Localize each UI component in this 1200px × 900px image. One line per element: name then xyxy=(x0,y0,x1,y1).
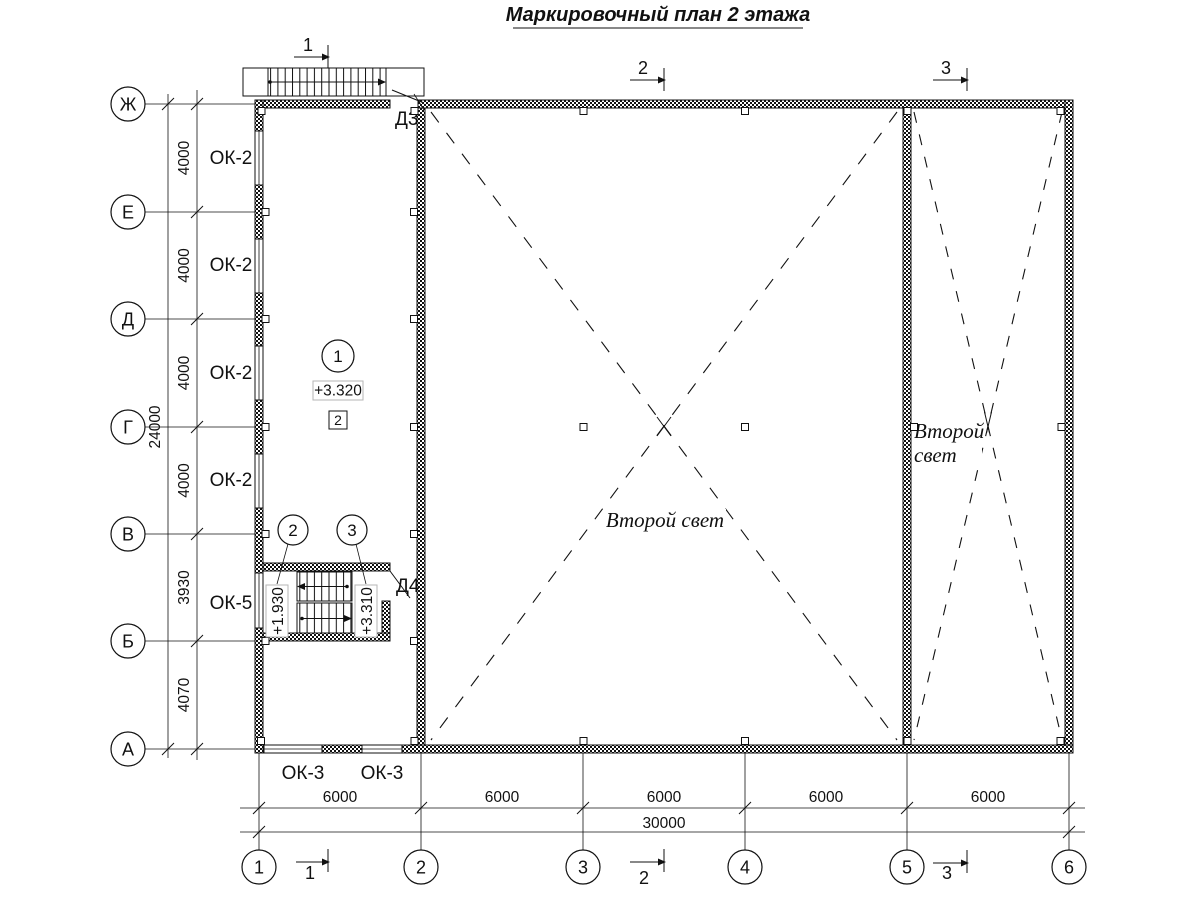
dim-value: 3930 xyxy=(176,570,193,605)
wall-bottom xyxy=(322,745,362,753)
column xyxy=(262,531,269,538)
axis-label: Е xyxy=(122,203,134,223)
section-number: 1 xyxy=(305,863,315,883)
section-number: 2 xyxy=(639,868,649,888)
section-number: 1 xyxy=(303,35,313,55)
dim-total-value: 30000 xyxy=(642,815,685,832)
elevation-value: +1.930 xyxy=(270,587,287,635)
dim-total-value: 24000 xyxy=(147,405,164,448)
column xyxy=(411,638,418,645)
dim-value: 4000 xyxy=(176,140,193,175)
axis-label: Б xyxy=(122,632,134,652)
section-arrow-head xyxy=(961,77,969,84)
column xyxy=(258,108,265,115)
title-text: Маркировочный план 2 этажа xyxy=(506,4,811,26)
axis-label: 2 xyxy=(416,858,426,878)
floor-plan-sheet: Маркировочный план 2 этажа Второй свет В… xyxy=(0,0,1200,900)
axis-label: Ж xyxy=(120,95,137,115)
axis-label: В xyxy=(122,525,134,545)
wall-left-pier xyxy=(255,628,263,753)
axis-label: А xyxy=(122,740,134,760)
dim-value: 4000 xyxy=(176,248,193,283)
opening-tags: ОК-2 ОК-2 ОК-2 ОК-2 ОК-5 ОК-3 ОК-3 xyxy=(210,148,404,784)
section-arrow-head xyxy=(658,859,666,866)
column xyxy=(258,738,265,745)
wall-bottom xyxy=(402,745,1073,753)
column xyxy=(904,108,911,115)
window-tag-ok2: ОК-2 xyxy=(210,148,253,169)
column xyxy=(1057,738,1064,745)
axis-label: 6 xyxy=(1064,858,1074,878)
wall-left-pier xyxy=(255,100,263,131)
wall-axis-5 xyxy=(903,108,911,745)
column xyxy=(411,424,418,431)
axis-label: Д xyxy=(122,310,134,330)
column xyxy=(742,108,749,115)
drawing-title: Маркировочный план 2 этажа xyxy=(506,4,811,28)
window-tag-ok2: ОК-2 xyxy=(210,470,253,491)
window-tag-ok5: ОК-5 xyxy=(210,593,253,614)
elevation-value: +3.310 xyxy=(359,587,376,635)
axis-label: 4 xyxy=(740,858,750,878)
dim-value: 6000 xyxy=(647,789,682,806)
column xyxy=(262,316,269,323)
dim-value: 6000 xyxy=(485,789,520,806)
wall-top-right xyxy=(418,100,1073,108)
window-tag-ok3: ОК-3 xyxy=(361,763,404,784)
axis-label: 1 xyxy=(254,858,264,878)
section-marks: 1 2 3 1 2 3 xyxy=(294,35,969,888)
node-number: 2 xyxy=(288,521,297,540)
column xyxy=(411,209,418,216)
axis-label: 5 xyxy=(902,858,912,878)
stairwell-wall-right xyxy=(382,601,390,633)
dim-value: 4070 xyxy=(176,677,193,712)
section-arrow-head xyxy=(658,77,666,84)
column xyxy=(911,424,918,431)
column xyxy=(262,209,269,216)
section-arrow-head xyxy=(961,860,969,867)
windows xyxy=(255,131,402,753)
column xyxy=(262,424,269,431)
axis-label: Г xyxy=(123,418,133,438)
dim-value: 6000 xyxy=(809,789,844,806)
finish-mark: 2 xyxy=(334,412,342,428)
wall-left-pier xyxy=(255,508,263,573)
wall-top-left xyxy=(255,100,390,108)
column xyxy=(411,531,418,538)
window-tag-ok2: ОК-2 xyxy=(210,255,253,276)
section-number: 3 xyxy=(942,863,952,883)
window-tag-ok2: ОК-2 xyxy=(210,363,253,384)
second-light-label: Второй свет xyxy=(606,508,724,532)
column xyxy=(742,424,749,431)
room-number: 1 xyxy=(333,347,342,366)
dim-value: 6000 xyxy=(323,789,358,806)
elevation-value: +3.320 xyxy=(314,383,362,400)
column xyxy=(1058,424,1065,431)
wall-right xyxy=(1065,100,1073,753)
axis-label: 3 xyxy=(578,858,588,878)
dim-value: 6000 xyxy=(971,789,1006,806)
column xyxy=(411,738,418,745)
dim-value: 4000 xyxy=(176,355,193,390)
column xyxy=(262,638,269,645)
second-light-label-line1: Второй xyxy=(914,419,985,443)
dim-value: 4000 xyxy=(176,463,193,498)
column xyxy=(411,108,418,115)
column xyxy=(580,738,587,745)
section-number: 2 xyxy=(638,58,648,78)
floor-plan-drawing: Маркировочный план 2 этажа Второй свет В… xyxy=(0,0,1200,900)
door-d4-label: Д4 xyxy=(396,576,420,597)
second-light-label-line2: свет xyxy=(914,443,957,467)
section-number: 3 xyxy=(941,58,951,78)
column xyxy=(904,738,911,745)
section-arrow-head xyxy=(322,859,330,866)
column xyxy=(580,424,587,431)
wall-axis-2 xyxy=(417,108,425,745)
window-tag-ok3: ОК-3 xyxy=(282,763,325,784)
column xyxy=(580,108,587,115)
column xyxy=(411,316,418,323)
section-arrow-head xyxy=(322,54,330,61)
column xyxy=(742,738,749,745)
internal-stair xyxy=(297,572,352,633)
column xyxy=(1057,108,1064,115)
left-axis-grid: Ж Е Д Г В Б А 4000 4000 4000 4000 3930 4… xyxy=(111,87,255,766)
node-number: 3 xyxy=(347,521,356,540)
